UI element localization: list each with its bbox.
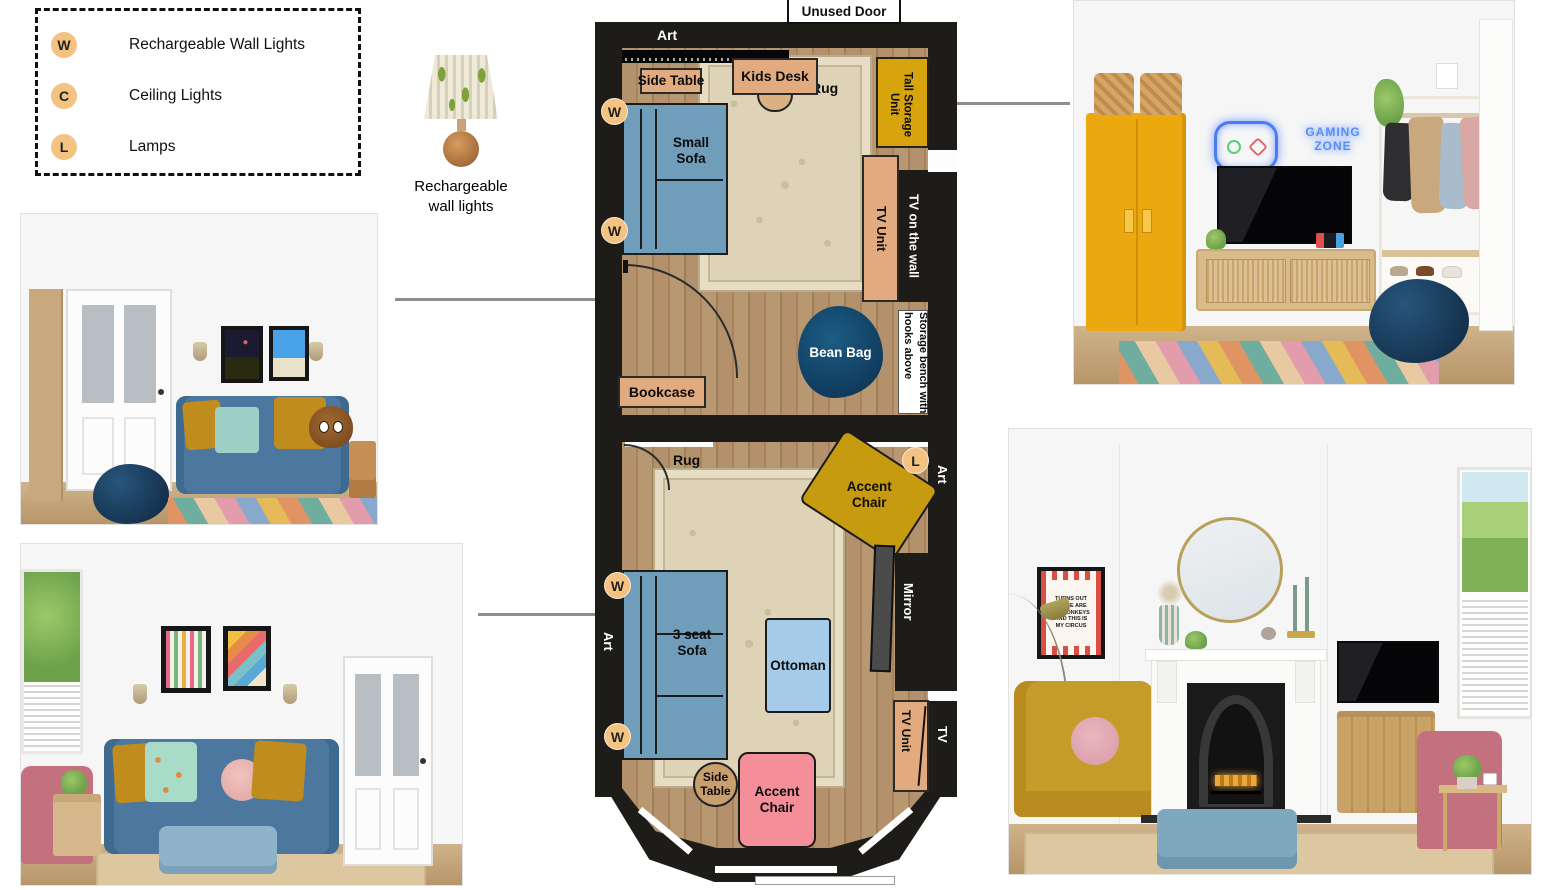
fireplace bbox=[1151, 657, 1321, 817]
round-side-table: Side Table bbox=[693, 762, 738, 807]
tv-wall-chunk: TV on the wall bbox=[899, 170, 928, 302]
door-panel bbox=[82, 417, 114, 475]
taper-candle bbox=[1305, 577, 1309, 631]
sofa-seam bbox=[655, 179, 723, 181]
neon-text-sign: GAMING ZONE bbox=[1302, 121, 1364, 157]
legend-label: Rechargeable Wall Lights bbox=[129, 36, 305, 54]
mug bbox=[1483, 773, 1497, 785]
legend-row-wall-lights: W Rechargeable Wall Lights bbox=[51, 19, 358, 70]
window-shutters bbox=[1462, 598, 1528, 714]
geometric-art-print bbox=[223, 626, 271, 691]
sofa-seam bbox=[640, 576, 642, 754]
upper-side-table-label: Side Table bbox=[638, 73, 705, 89]
tv-line bbox=[918, 706, 927, 786]
wall-light-marker: W bbox=[601, 217, 628, 244]
unused-door-label: Unused Door bbox=[787, 0, 901, 24]
blue-ottoman bbox=[159, 826, 277, 874]
art-left-label: Art bbox=[601, 632, 616, 651]
kids-desk-label: Kids Desk bbox=[741, 68, 809, 84]
mirror-wall-chunk: Mirror bbox=[895, 553, 957, 691]
window-greenery bbox=[24, 572, 80, 682]
poster-art bbox=[273, 330, 305, 377]
side-table-leg bbox=[1497, 793, 1501, 851]
shoes bbox=[1442, 266, 1462, 278]
sofa-seam bbox=[655, 695, 723, 697]
locker-handle bbox=[1124, 209, 1134, 233]
plant bbox=[61, 770, 87, 794]
floor-plan: Unused Door Art Rug Side Table Kids Desk… bbox=[595, 0, 957, 890]
sofa-seam bbox=[640, 109, 642, 249]
tall-storage-unit: Tall Storage Unit bbox=[876, 57, 929, 148]
wall-recess bbox=[928, 690, 957, 701]
round-side-table-label: Side Table bbox=[695, 771, 736, 799]
door-leaf bbox=[623, 260, 628, 273]
wall-light-marker: W bbox=[601, 98, 628, 125]
wall-light-figure: Rechargeable wall lights bbox=[406, 55, 516, 216]
locker-handle bbox=[1142, 209, 1152, 233]
door-pane bbox=[82, 305, 114, 403]
trailing-plant bbox=[1374, 79, 1404, 127]
lower-tv-unit-label: TV Unit bbox=[898, 710, 912, 752]
connector-line-snug bbox=[395, 298, 605, 301]
rattan-door bbox=[1206, 259, 1286, 303]
sofa-seam bbox=[655, 576, 657, 754]
shoes bbox=[1416, 266, 1434, 276]
geometric-rug bbox=[168, 498, 378, 525]
lower-rug-label: Rug bbox=[673, 452, 700, 468]
plant bbox=[1206, 229, 1226, 249]
lamp-backplate bbox=[443, 131, 479, 167]
door-pane bbox=[393, 674, 419, 776]
lower-tv-unit: TV Unit bbox=[893, 700, 929, 792]
three-seat-sofa: 3 seat Sofa bbox=[622, 570, 728, 760]
art-right-label: Art bbox=[935, 465, 950, 484]
wall-sconce-icon bbox=[193, 342, 207, 361]
wall-light-marker: W bbox=[604, 723, 631, 750]
ottoman-plan: Ottoman bbox=[765, 618, 831, 713]
round-mirror bbox=[1177, 517, 1283, 623]
mario-poster bbox=[221, 326, 263, 383]
render-snug-sofa-wall bbox=[20, 213, 378, 525]
connector-line-kids-room bbox=[948, 102, 1070, 105]
connector-line-living bbox=[478, 613, 607, 616]
wall-light-marker: W bbox=[604, 572, 631, 599]
bookcase: Bookcase bbox=[618, 376, 706, 408]
lamp-stem bbox=[457, 119, 466, 131]
upper-tv-unit: TV Unit bbox=[862, 155, 899, 302]
wicker-basket bbox=[1094, 73, 1134, 115]
upper-tv-unit-label: TV Unit bbox=[873, 206, 888, 252]
art-wall-label: Art bbox=[657, 27, 677, 43]
rattan-door bbox=[1290, 259, 1370, 303]
poster-art bbox=[228, 631, 266, 686]
dried-stems bbox=[1157, 579, 1183, 607]
bottles-art-print bbox=[161, 626, 211, 693]
side-table-render bbox=[349, 441, 376, 498]
legend-row-lamps: L Lamps bbox=[51, 121, 358, 172]
mantel-corbel bbox=[1295, 661, 1315, 703]
render-living-fireplace-wall: TURNS OUT THESE ARE MY MONKEYS AND THIS … bbox=[1008, 428, 1532, 875]
neon-controller-buttons bbox=[1248, 137, 1268, 157]
ottoman-label: Ottoman bbox=[770, 658, 826, 674]
door-pane bbox=[355, 674, 381, 776]
design-board: { "legend": { "items": [ {"symbol": "W",… bbox=[0, 0, 1556, 890]
mirror-label: Mirror bbox=[901, 583, 916, 621]
legend-label: Ceiling Lights bbox=[129, 87, 222, 105]
three-seat-sofa-label: 3 seat Sofa bbox=[662, 627, 722, 658]
fireplace-insert bbox=[1187, 683, 1285, 811]
storage-bench-label: Storage bench with hooks above bbox=[896, 312, 930, 440]
candle-box bbox=[1436, 63, 1458, 89]
plant-pot bbox=[1457, 777, 1477, 789]
rattan-media-console bbox=[1196, 249, 1376, 311]
lamp-marker-icon: L bbox=[51, 134, 77, 160]
wall-recess bbox=[928, 150, 957, 172]
window bbox=[21, 569, 83, 754]
wicker-basket bbox=[1140, 73, 1182, 115]
render-living-sofa-wall bbox=[20, 543, 463, 886]
small-sofa-label: Small Sofa bbox=[658, 135, 724, 166]
shoes bbox=[1390, 266, 1408, 276]
pink-round-cushion bbox=[1071, 717, 1119, 765]
window-shutters bbox=[24, 682, 80, 751]
tv-on-wall-label: TV on the wall bbox=[907, 194, 921, 278]
bean-bag-label: Bean Bag bbox=[809, 345, 871, 360]
mario-poster bbox=[269, 326, 309, 381]
accent-chair-pink-label: Accent Chair bbox=[750, 784, 804, 815]
wood-panel bbox=[29, 289, 63, 501]
small-sofa: Small Sofa bbox=[622, 103, 728, 255]
door-swing-lower bbox=[623, 444, 670, 491]
candle-holder bbox=[1287, 631, 1315, 638]
neon-controller-dpad bbox=[1227, 140, 1241, 154]
patterned-cushion bbox=[145, 742, 197, 802]
taper-candle bbox=[1293, 585, 1297, 631]
kids-desk: Kids Desk bbox=[732, 58, 818, 95]
door-panel bbox=[393, 788, 419, 850]
bench-top bbox=[1382, 250, 1481, 257]
game-console bbox=[1316, 233, 1344, 248]
fire-grate bbox=[1211, 791, 1261, 794]
door-knob bbox=[420, 758, 426, 764]
side-table-leg bbox=[1443, 793, 1447, 851]
mustard-cushion bbox=[251, 740, 307, 801]
firebox bbox=[1208, 704, 1264, 804]
mantel-corbel bbox=[1157, 661, 1177, 703]
window bbox=[1457, 467, 1532, 719]
goomba-plush bbox=[309, 406, 353, 448]
poster-art bbox=[225, 330, 259, 379]
poster-art bbox=[166, 631, 206, 688]
plant bbox=[1185, 631, 1207, 649]
mantel-shelf bbox=[1145, 649, 1327, 661]
door-pane bbox=[124, 305, 156, 403]
bookcase-label: Bookcase bbox=[629, 384, 695, 400]
interior-door bbox=[66, 289, 172, 491]
wall-light-marker-icon: W bbox=[51, 32, 77, 58]
bay-glazing bbox=[715, 866, 837, 873]
goomba-eye bbox=[319, 421, 329, 433]
window-tree-view bbox=[1462, 472, 1528, 592]
goomba-eye bbox=[333, 421, 343, 433]
legend-label: Lamps bbox=[129, 138, 176, 156]
wall-panel-line bbox=[1327, 444, 1328, 824]
wall-sconce-icon bbox=[309, 342, 323, 361]
yellow-locker-cabinet bbox=[1086, 113, 1186, 331]
door-swing-upper bbox=[623, 264, 738, 380]
accent-chair-gold-label: Accent Chair bbox=[837, 479, 901, 510]
lamp-marker: L bbox=[902, 447, 929, 474]
wall-tv bbox=[1337, 641, 1439, 703]
blue-ottoman bbox=[1157, 809, 1297, 869]
lamp-shade bbox=[424, 55, 498, 119]
tall-storage-label: Tall Storage Unit bbox=[886, 62, 914, 146]
render-kids-gaming-room: GAMING ZONE bbox=[1073, 0, 1515, 385]
fire-logs bbox=[1215, 775, 1257, 786]
legend-row-ceiling-lights: C Ceiling Lights bbox=[51, 70, 358, 121]
wall-pillar bbox=[1479, 19, 1513, 331]
wall-sconce-icon bbox=[283, 684, 297, 704]
tv-label: TV bbox=[935, 726, 950, 743]
door-knob bbox=[158, 389, 164, 395]
interior-door bbox=[343, 656, 433, 866]
striped-vase bbox=[1159, 605, 1179, 645]
bay-sill bbox=[755, 876, 895, 885]
coral-ornament bbox=[1261, 627, 1276, 640]
side-table-render bbox=[53, 794, 101, 856]
upper-side-table: Side Table bbox=[640, 68, 702, 94]
plant bbox=[1453, 755, 1481, 779]
legend-box: W Rechargeable Wall Lights C Ceiling Lig… bbox=[35, 8, 361, 176]
teal-cushion bbox=[215, 407, 259, 453]
neon-controller-sign bbox=[1214, 121, 1278, 171]
wall-light-caption: Rechargeable wall lights bbox=[406, 177, 516, 216]
locker-door-split bbox=[1136, 119, 1138, 325]
door-panel bbox=[355, 788, 381, 850]
wall-sconce-icon bbox=[133, 684, 147, 704]
ceiling-light-marker-icon: C bbox=[51, 83, 77, 109]
accent-chair-pink: Accent Chair bbox=[738, 752, 816, 848]
mirror-object bbox=[870, 545, 895, 673]
